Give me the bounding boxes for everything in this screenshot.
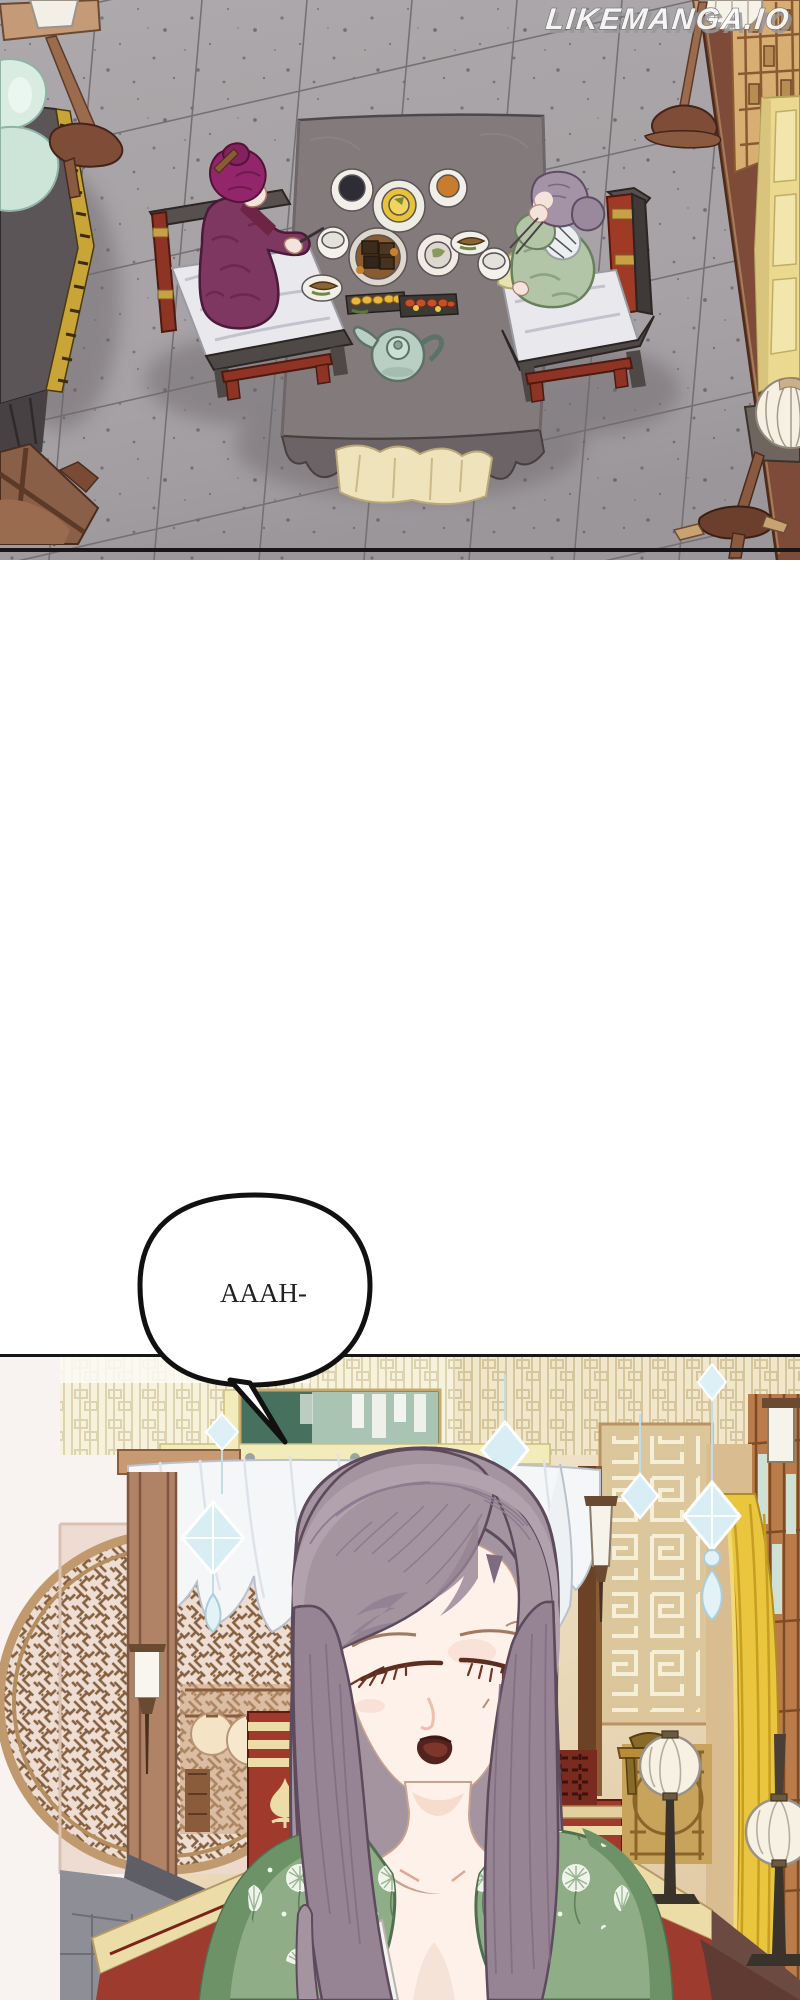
svg-text:AAAH-: AAAH- (220, 1278, 307, 1308)
